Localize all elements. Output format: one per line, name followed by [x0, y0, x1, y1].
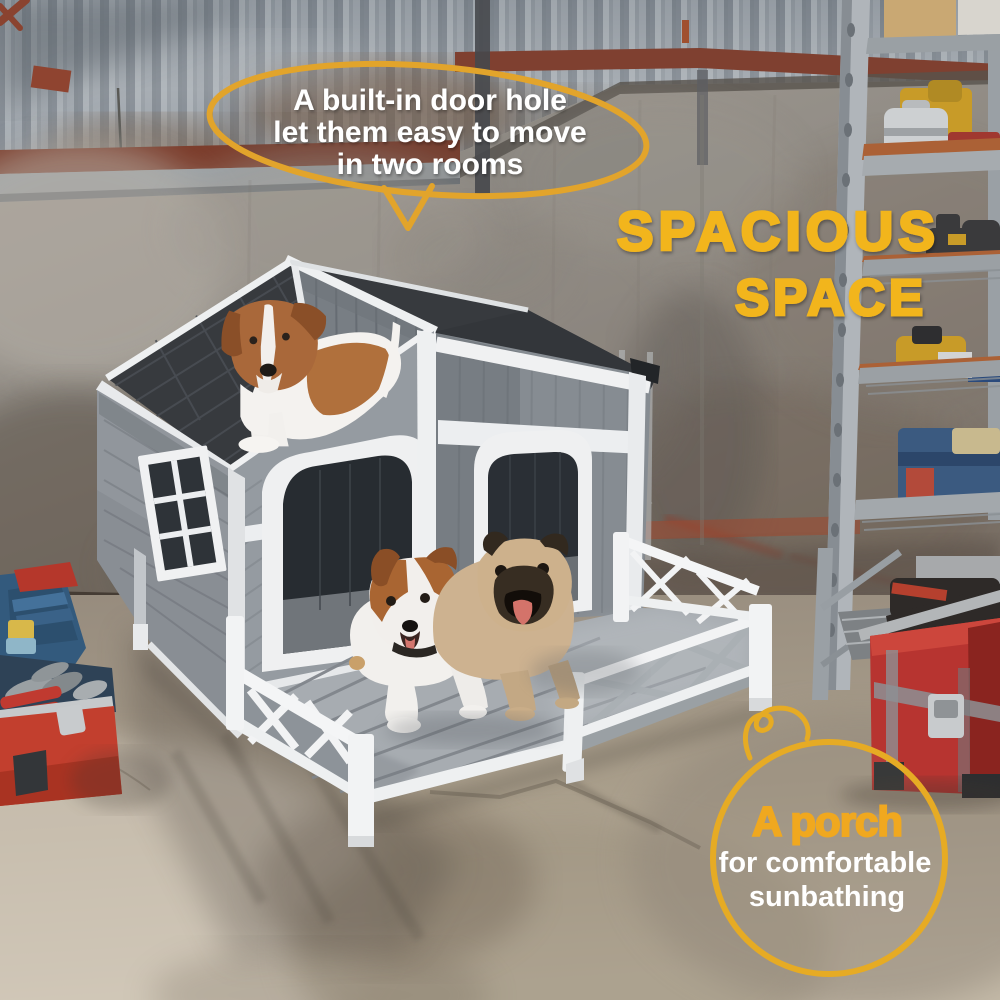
svg-text:A built-in door hole: A built-in door hole: [293, 84, 567, 117]
svg-text:let them easy to move: let them easy to move: [273, 116, 586, 149]
svg-text:in two rooms: in two rooms: [337, 148, 524, 181]
svg-text:SPACE: SPACE: [735, 269, 927, 326]
svg-text:SPACIOUS: SPACIOUS: [617, 200, 940, 262]
svg-text:sunbathing: sunbathing: [749, 881, 905, 913]
svg-text:A porch: A porch: [752, 798, 902, 845]
svg-text:for comfortable: for comfortable: [719, 847, 932, 879]
